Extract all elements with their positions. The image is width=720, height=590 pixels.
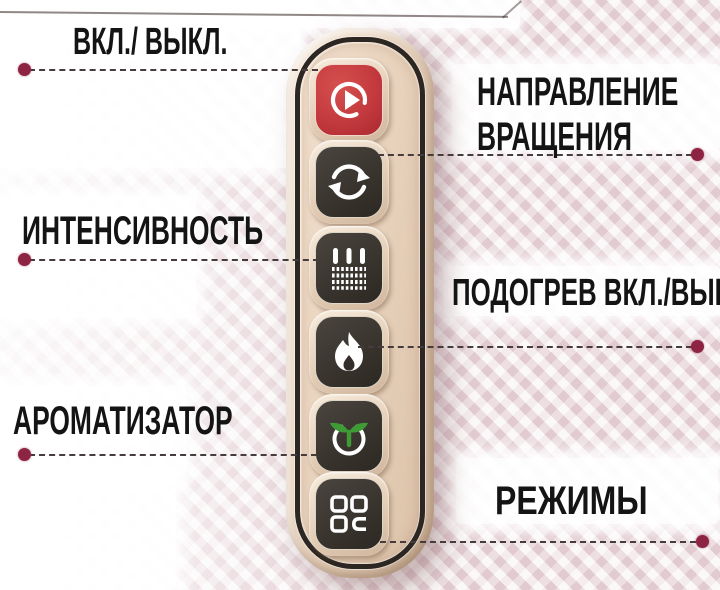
modes-button[interactable]	[309, 472, 389, 556]
flame-icon	[325, 328, 373, 376]
aroma-button-face	[315, 400, 383, 472]
rotate-arrows-icon	[325, 158, 373, 206]
direction-label: НАПРАВЛЕНИЕ ВРАЩЕНИЯ	[477, 70, 678, 160]
power-callout-line	[29, 69, 318, 71]
aroma-button[interactable]	[309, 394, 389, 478]
direction-label-line2: ВРАЩЕНИЯ	[477, 115, 678, 160]
intensity-callout-line	[29, 259, 319, 261]
control-panel	[286, 28, 434, 578]
intensity-callout-dot	[18, 253, 31, 266]
rotation-button-face	[315, 146, 383, 218]
play-circle-icon	[325, 76, 373, 124]
aroma-callout-dot	[18, 448, 31, 461]
intensity-button-face	[315, 232, 383, 304]
power-label: ВКЛ./ ВЫКЛ.	[73, 22, 227, 62]
power-button-face	[315, 64, 383, 136]
aroma-label: АРОМАТИЗАТОР	[13, 400, 233, 442]
heating-label: ПОДОГРЕВ ВКЛ./ВЫКЛ.	[452, 273, 720, 313]
heating-button[interactable]	[309, 310, 389, 394]
direction-callout-dot	[691, 148, 704, 161]
aroma-callout-line	[29, 454, 317, 456]
direction-label-line1: НАПРАВЛЕНИЕ	[477, 70, 678, 115]
power-callout-dot	[18, 63, 31, 76]
massage-intensity-icon	[325, 244, 373, 292]
intensity-button[interactable]	[309, 226, 389, 310]
power-button[interactable]	[309, 58, 389, 142]
heating-callout-line	[358, 346, 692, 348]
modes-callout-dot	[696, 535, 709, 548]
heating-button-face	[315, 316, 383, 388]
modes-callout-line	[380, 541, 696, 543]
sprout-icon	[325, 412, 373, 460]
rotation-button[interactable]	[309, 140, 389, 224]
heating-callout-dot	[691, 340, 704, 353]
modes-label: РЕЖИМЫ	[495, 480, 648, 522]
white-patch	[0, 476, 176, 590]
modes-button-face	[315, 478, 383, 550]
intensity-label: ИНТЕНСИВНОСТЬ	[22, 210, 263, 252]
annotated-product-image: ВКЛ./ ВЫКЛ. НАПРАВЛЕНИЕ ВРАЩЕНИЯ ИНТЕНСИ…	[0, 0, 720, 590]
grid-modes-icon	[325, 490, 373, 538]
